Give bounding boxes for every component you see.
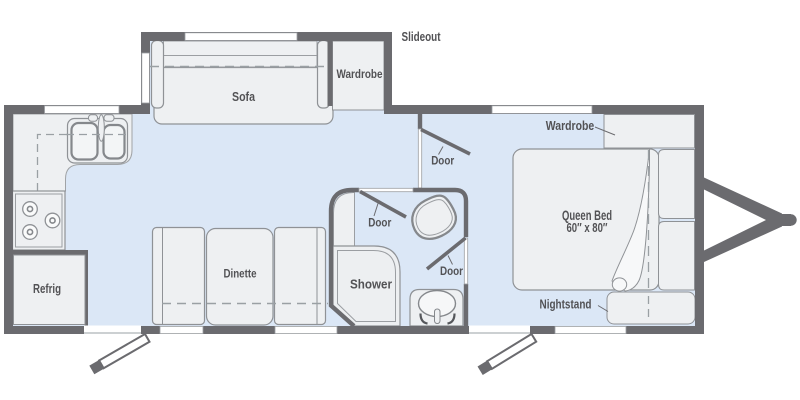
svg-text:60″ x 80″: 60″ x 80″ bbox=[567, 220, 608, 235]
svg-text:Dinette: Dinette bbox=[224, 267, 257, 281]
svg-text:Door: Door bbox=[431, 154, 454, 168]
svg-text:Slideout: Slideout bbox=[402, 30, 442, 44]
svg-text:Door: Door bbox=[440, 264, 463, 278]
svg-text:Wardrobe: Wardrobe bbox=[337, 67, 383, 81]
svg-text:Wardrobe: Wardrobe bbox=[546, 119, 595, 133]
svg-text:Refrig: Refrig bbox=[33, 282, 61, 296]
svg-text:Shower: Shower bbox=[350, 278, 392, 292]
svg-text:Door: Door bbox=[368, 216, 391, 230]
svg-text:Sofa: Sofa bbox=[232, 89, 256, 104]
svg-text:Nightstand: Nightstand bbox=[540, 298, 592, 312]
